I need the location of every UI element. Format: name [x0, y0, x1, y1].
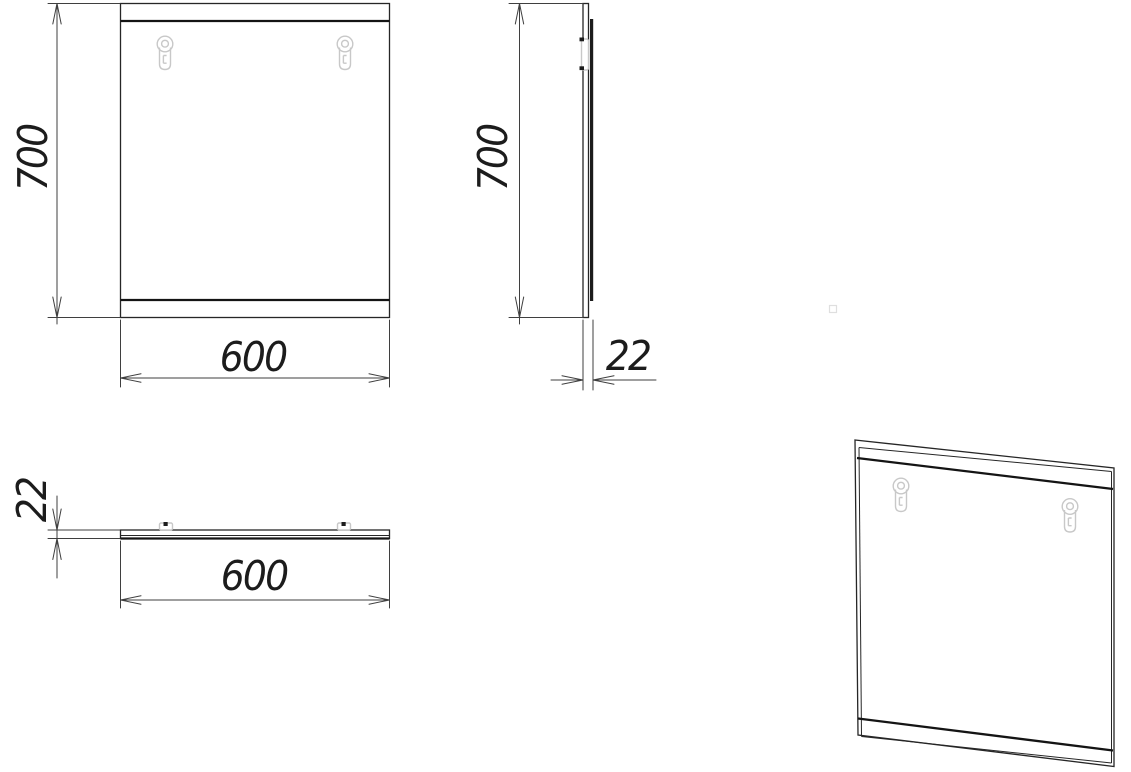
perspective-top-edge-line	[859, 448, 1112, 472]
front-view-dimensions	[48, 4, 390, 388]
front-height-label: 700	[9, 125, 57, 191]
mount-clip-mark	[580, 66, 585, 70]
keyhole-mount-icon	[893, 478, 909, 511]
front-view	[121, 4, 390, 318]
top-view	[121, 522, 390, 539]
keyhole-mount-icon	[337, 36, 353, 69]
mount-tab-clip	[342, 522, 346, 526]
top-width-label: 600	[221, 552, 287, 600]
top-view-dimensions	[48, 496, 390, 608]
keyhole-mount-icon	[1062, 499, 1078, 532]
keyhole-mount-icon	[157, 36, 173, 69]
mount-clip-mark	[580, 38, 585, 42]
perspective-top-trim-line	[857, 458, 1113, 489]
stray-mark	[830, 306, 837, 313]
side-depth-label: 22	[606, 332, 650, 380]
side-back-strip	[590, 19, 593, 301]
side-view	[580, 4, 594, 318]
perspective-view	[855, 440, 1114, 767]
perspective-bottom-edge-line	[862, 737, 1112, 764]
perspective-left-edge-line	[859, 448, 862, 737]
front-width-label: 600	[220, 333, 286, 381]
top-panel-outline	[121, 530, 390, 539]
side-mount-bracket	[582, 39, 589, 70]
mount-tab-clip	[164, 522, 168, 526]
drawing-canvas: 700 600 700 22 22 600	[0, 0, 1131, 772]
top-depth-label: 22	[8, 478, 56, 522]
perspective-bottom-trim-line	[858, 719, 1113, 751]
drawing-linework	[0, 0, 1131, 772]
side-height-label: 700	[469, 125, 517, 191]
